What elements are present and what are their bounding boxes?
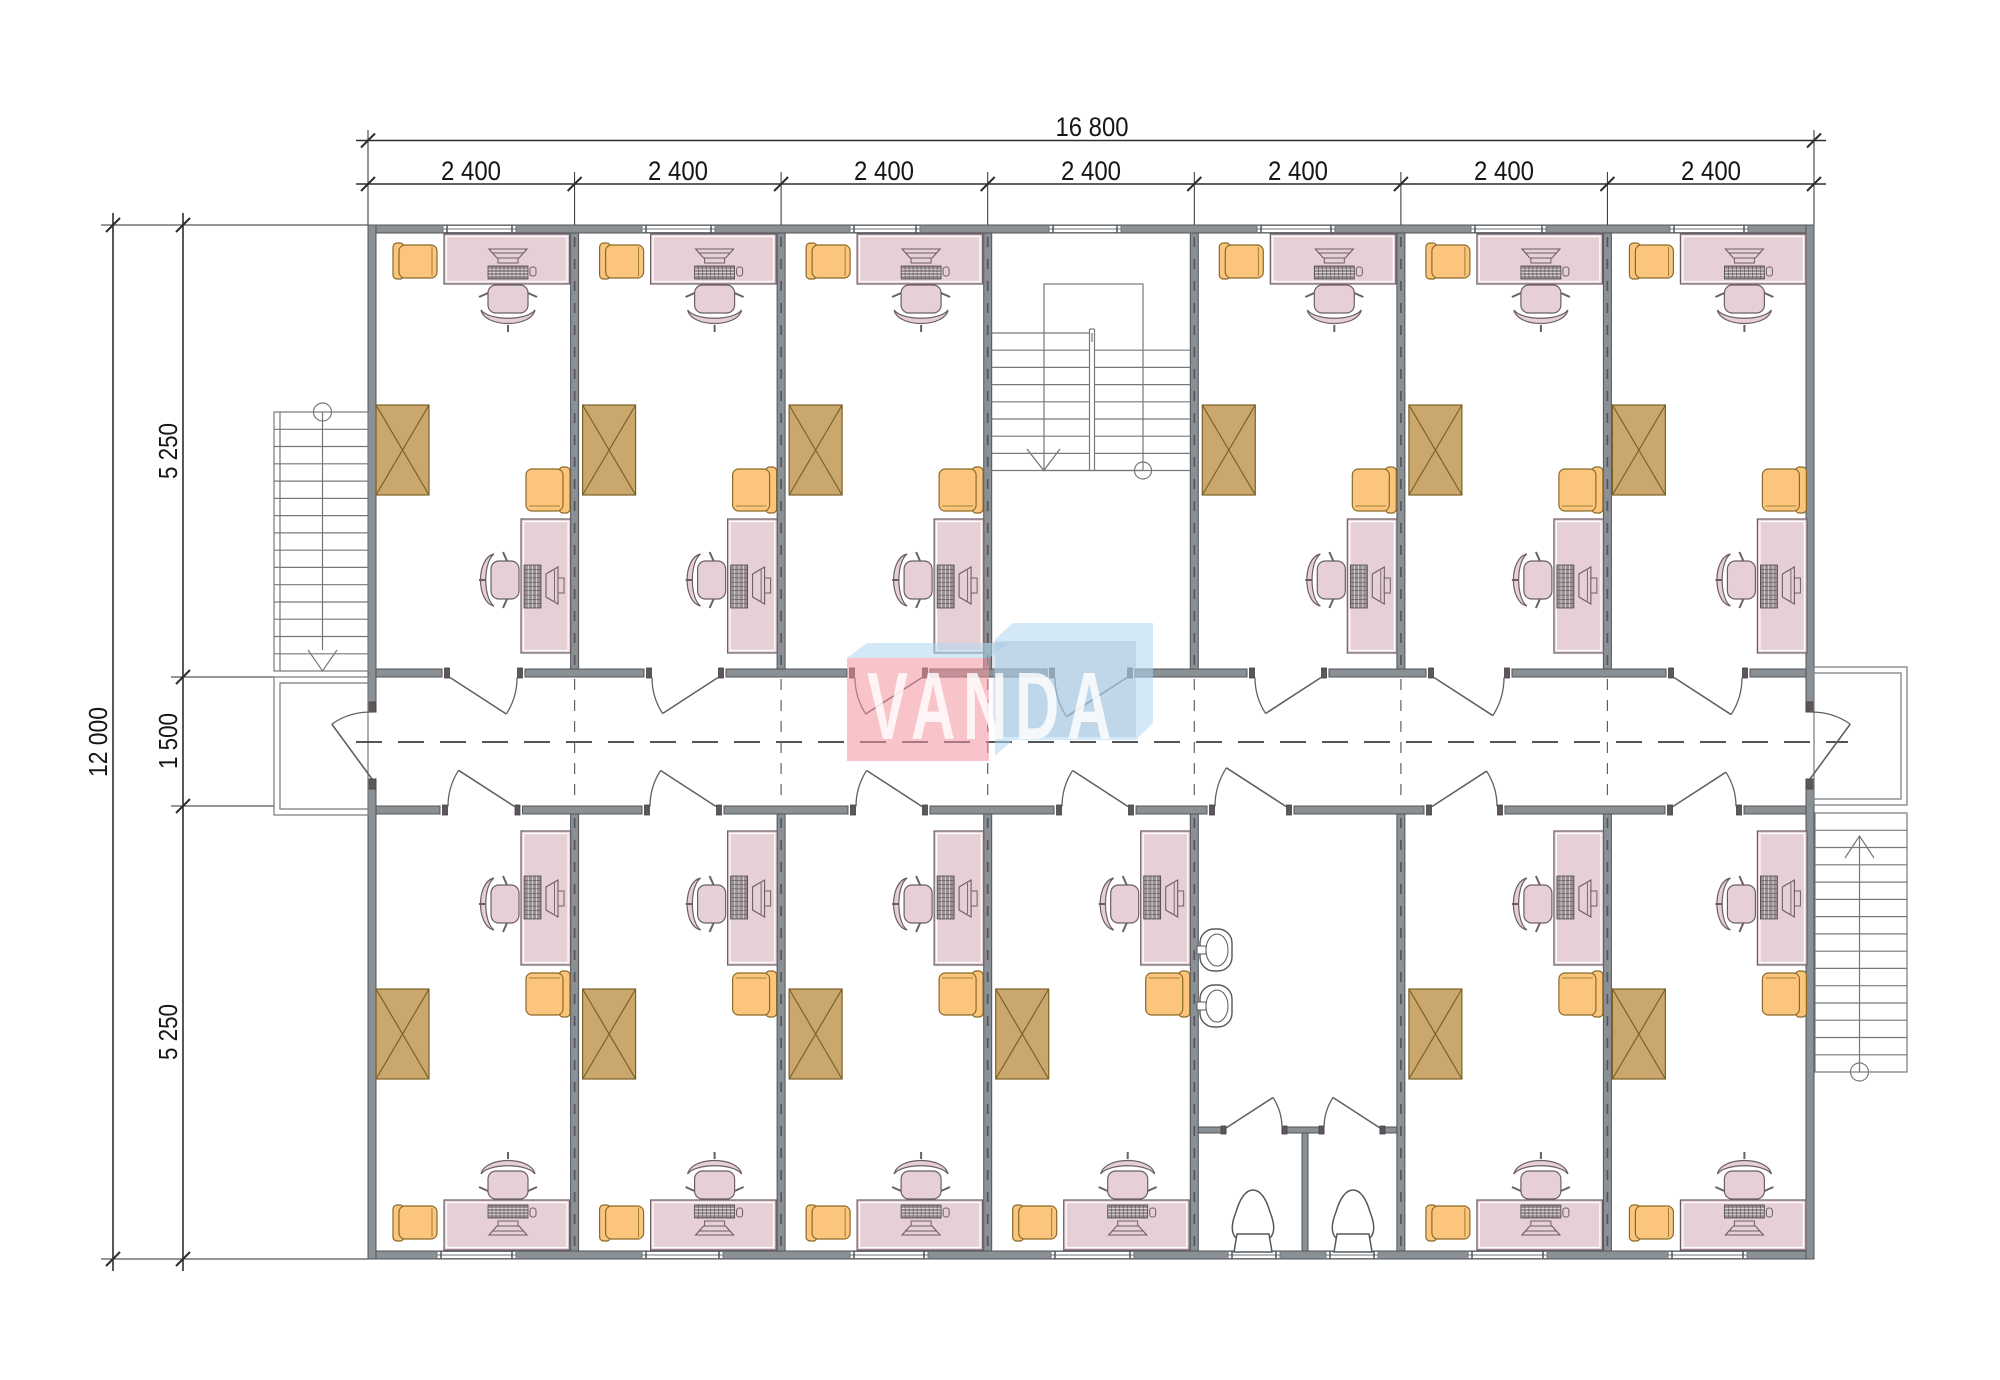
svg-text:2 400: 2 400: [648, 156, 708, 186]
svg-text:1 500: 1 500: [153, 713, 183, 769]
svg-text:5 250: 5 250: [153, 423, 183, 479]
svg-text:2 400: 2 400: [441, 156, 501, 186]
svg-text:2 400: 2 400: [1061, 156, 1121, 186]
svg-text:VANDA: VANDA: [867, 653, 1119, 760]
svg-text:12 000: 12 000: [83, 707, 113, 777]
svg-text:2 400: 2 400: [854, 156, 914, 186]
svg-text:2 400: 2 400: [1474, 156, 1534, 186]
svg-text:2 400: 2 400: [1681, 156, 1741, 186]
svg-text:5 250: 5 250: [153, 1004, 183, 1060]
svg-text:2 400: 2 400: [1268, 156, 1328, 186]
svg-text:16 800: 16 800: [1056, 112, 1129, 142]
